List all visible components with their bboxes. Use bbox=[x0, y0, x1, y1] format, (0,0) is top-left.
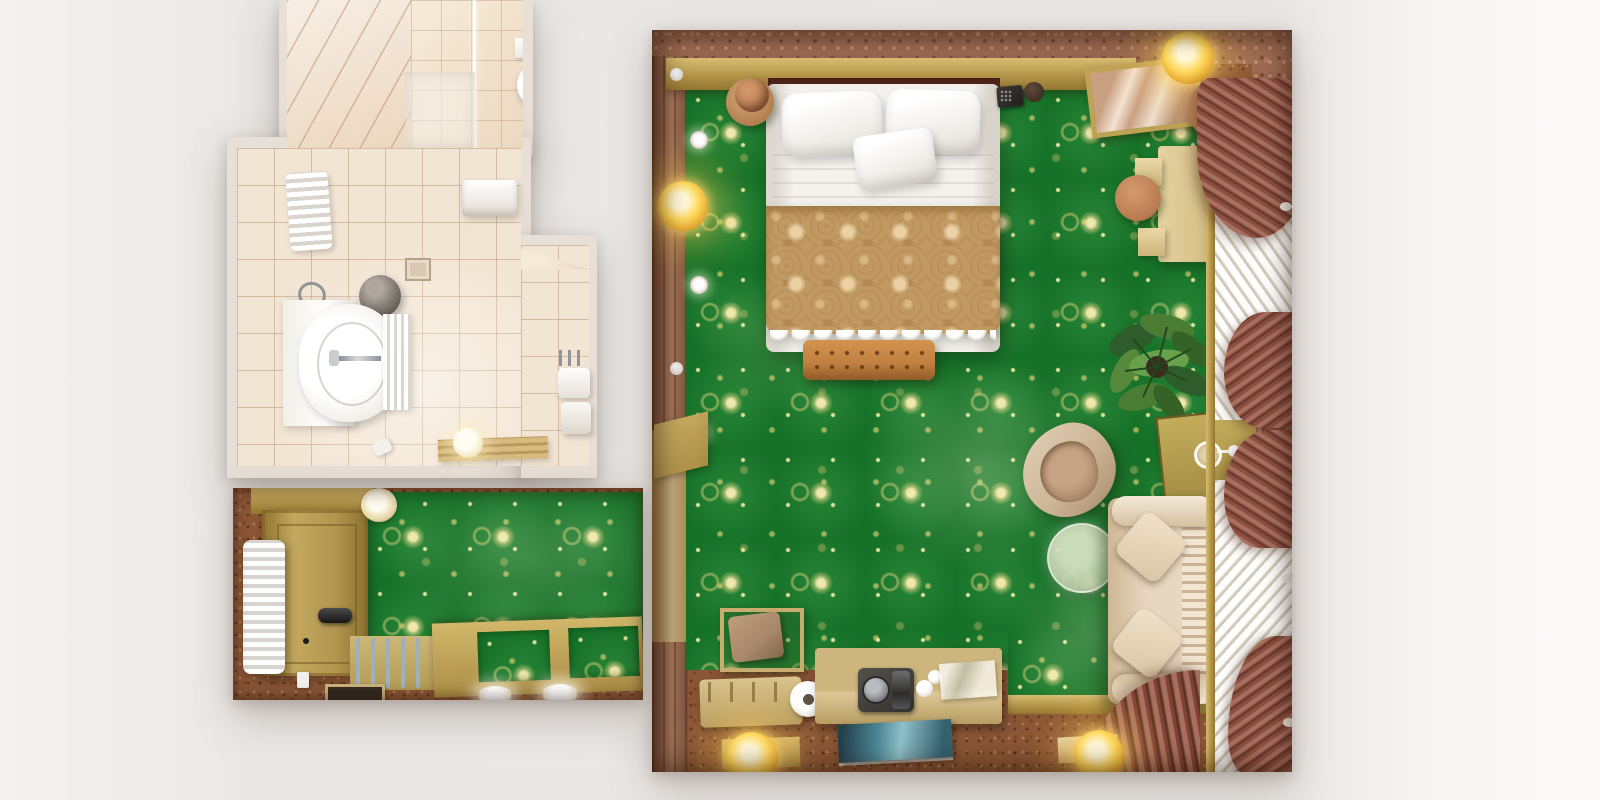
shower-room bbox=[287, 0, 523, 148]
floor-drain bbox=[405, 258, 431, 281]
hanging-towel-1 bbox=[558, 368, 590, 398]
towel-hooks bbox=[559, 350, 585, 366]
bedroom-vignette bbox=[652, 30, 1292, 772]
hallway bbox=[233, 488, 643, 700]
ball-lamp bbox=[453, 428, 483, 458]
sink-vanity bbox=[283, 300, 415, 426]
bathroom bbox=[225, 0, 605, 478]
towel-radiator bbox=[285, 171, 332, 252]
vanity-ribbed-front bbox=[383, 314, 411, 410]
soap-shelf bbox=[515, 38, 523, 58]
scene-description: Overhead render of a hotel suite: en-sui… bbox=[0, 0, 1, 1]
faucet bbox=[335, 356, 381, 361]
hanging-towel-2 bbox=[561, 402, 591, 434]
faucet-handles bbox=[329, 350, 339, 366]
suite-floorplan-render: Overhead render of a hotel suite: en-sui… bbox=[0, 0, 1600, 800]
shower-wall-tiles bbox=[287, 0, 415, 148]
frosted-glass bbox=[405, 72, 475, 148]
wall-heater bbox=[462, 180, 517, 216]
basin-inner-line bbox=[317, 322, 387, 406]
hallway-vignette bbox=[233, 488, 643, 700]
bedroom bbox=[652, 30, 1292, 772]
